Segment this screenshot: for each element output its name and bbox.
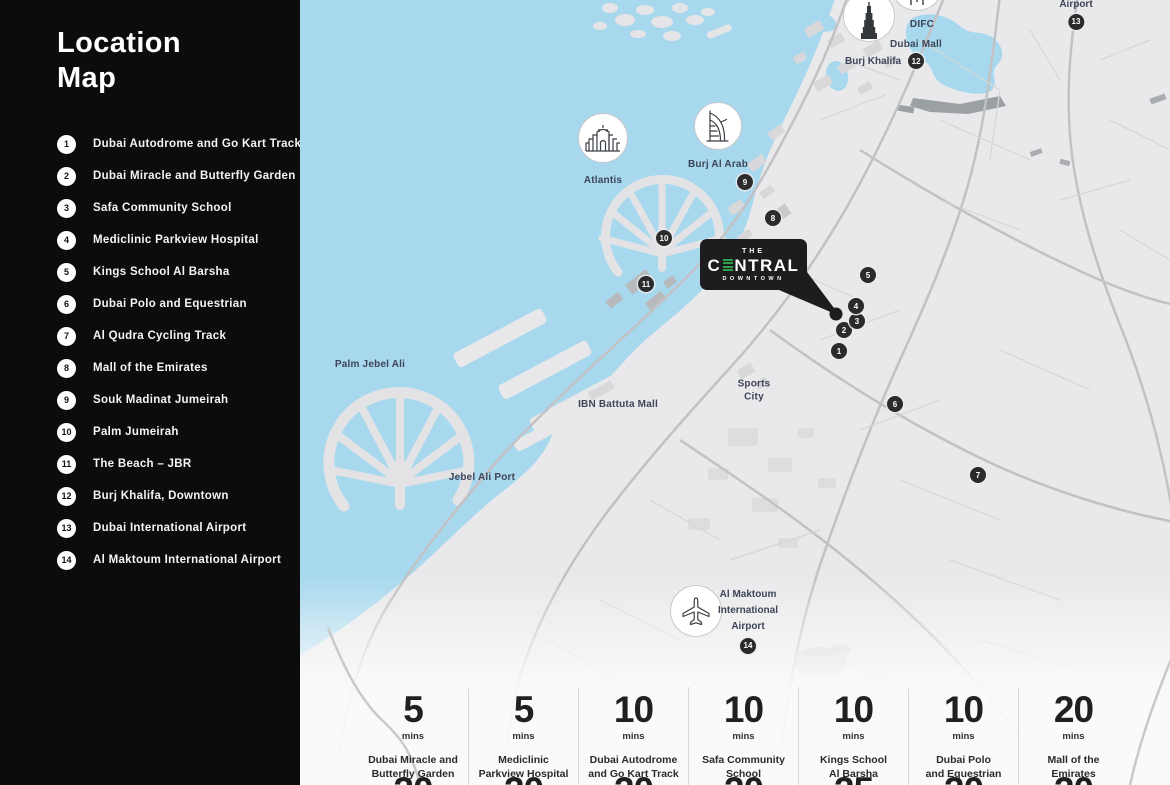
atlantis-icon: [585, 124, 621, 152]
burj-khalifa-icon: [858, 2, 880, 40]
list-item-label: Al Maktoum International Airport: [93, 554, 281, 566]
atlantis-poi: [578, 113, 628, 163]
list-item-label: Safa Community School: [93, 202, 232, 214]
list-item-label: Souk Madinat Jumeirah: [93, 394, 228, 406]
travel-time-value: 10: [913, 691, 1014, 728]
map-marker: 13: [1068, 14, 1084, 30]
list-number-badge: 7: [57, 327, 76, 346]
travel-time-unit: mins: [803, 731, 904, 742]
travel-time-value: 10: [583, 691, 684, 728]
list-number-badge: 10: [57, 423, 76, 442]
travel-time-unit: mins: [913, 731, 1014, 742]
list-item-label: Al Qudra Cycling Track: [93, 330, 226, 342]
list-item-label: Burj Khalifa, Downtown: [93, 490, 229, 502]
list-item: 13Dubai International Airport: [57, 519, 300, 538]
list-item-label: Dubai Autodrome and Go Kart Track: [93, 138, 301, 150]
central-downtown-logo: THE C NTRAL DOWNTOWN: [700, 239, 807, 290]
list-number-badge: 9: [57, 391, 76, 410]
burj-al-arab-poi: [694, 102, 742, 150]
list-item-label: Dubai Polo and Equestrian: [93, 298, 247, 310]
list-item-label: The Beach – JBR: [93, 458, 191, 470]
map-marker: 12: [908, 53, 924, 69]
map-marker: 1: [831, 343, 847, 359]
map-label-atlantis: Atlantis: [584, 175, 622, 188]
travel-time-value: 20: [578, 772, 688, 785]
map-label-difc: DIFC: [910, 19, 934, 32]
map-marker: 8: [765, 210, 781, 226]
list-item: 4Mediclinic Parkview Hospital: [57, 231, 300, 250]
travel-time-unit: mins: [693, 731, 794, 742]
map-marker: 10: [656, 230, 672, 246]
map-label-burj-khalifa: Burj Khalifa 12: [845, 53, 924, 69]
list-item: 5Kings School Al Barsha: [57, 263, 300, 282]
travel-times-row-partial: 20 20 20 20 25 20 20: [358, 772, 1128, 785]
list-item: 14Al Maktoum International Airport: [57, 551, 300, 570]
list-number-badge: 3: [57, 199, 76, 218]
location-map-page: Location Map 1Dubai Autodrome and Go Kar…: [0, 0, 1170, 785]
travel-time-value: 20: [468, 772, 578, 785]
map-label-ibn-battuta-mall: IBN Battuta Mall: [578, 399, 658, 412]
list-item: 12Burj Khalifa, Downtown: [57, 487, 300, 506]
list-item-label: Dubai International Airport: [93, 522, 246, 534]
map-label-palm-jebel-ali: Palm Jebel Ali: [335, 359, 405, 372]
list-number-badge: 12: [57, 487, 76, 506]
map-label-jebel-ali-port: Jebel Ali Port: [449, 472, 515, 485]
list-item: 10Palm Jumeirah: [57, 423, 300, 442]
location-list: 1Dubai Autodrome and Go Kart Track 2Duba…: [57, 135, 300, 570]
list-item: 7Al Qudra Cycling Track: [57, 327, 300, 346]
burj-al-arab-icon: [706, 110, 730, 142]
travel-time-value: 20: [358, 772, 468, 785]
map-marker: 3: [849, 313, 865, 329]
page-title: Location Map: [57, 26, 237, 97]
travel-time-value: 5: [362, 691, 464, 728]
creek-flats: [898, 93, 1167, 166]
list-item: 11The Beach – JBR: [57, 455, 300, 474]
list-item-label: Dubai Miracle and Butterfly Garden: [93, 170, 296, 182]
list-number-badge: 11: [57, 455, 76, 474]
list-number-badge: 8: [57, 359, 76, 378]
list-number-badge: 5: [57, 263, 76, 282]
airplane-icon: [681, 596, 711, 626]
travel-time-value: 10: [693, 691, 794, 728]
list-item: 1Dubai Autodrome and Go Kart Track: [57, 135, 300, 154]
travel-time-value: 20: [908, 772, 1018, 785]
list-item-label: Kings School Al Barsha: [93, 266, 230, 278]
travel-time-unit: mins: [473, 731, 574, 742]
list-item: 2Dubai Miracle and Butterfly Garden: [57, 167, 300, 186]
map-marker: 4: [848, 298, 864, 314]
travel-time-value: 20: [1023, 691, 1124, 728]
list-item-label: Palm Jumeirah: [93, 426, 179, 438]
difc-icon: [907, 0, 927, 10]
list-item: 6Dubai Polo and Equestrian: [57, 295, 300, 314]
map-marker: 9: [737, 174, 753, 190]
list-number-badge: 6: [57, 295, 76, 314]
logo-the: THE: [742, 248, 765, 255]
list-number-badge: 1: [57, 135, 76, 154]
suburb-blocks: [688, 428, 836, 548]
map-label-al-maktoum-airport: Al Maktoum International Airport 14: [718, 588, 778, 654]
travel-time-unit: mins: [583, 731, 684, 742]
travel-time-unit: mins: [1023, 731, 1124, 742]
map-label-sports-city: Sports City: [738, 379, 771, 404]
travel-time-value: 5: [473, 691, 574, 728]
list-item: 3Safa Community School: [57, 199, 300, 218]
central-logo-e-icon: [723, 259, 733, 271]
list-item-label: Mediclinic Parkview Hospital: [93, 234, 259, 246]
travel-time-value: 25: [798, 772, 908, 785]
sidebar: Location Map 1Dubai Autodrome and Go Kar…: [0, 0, 300, 785]
travel-time-value: 10: [803, 691, 904, 728]
map-marker: 11: [638, 276, 654, 292]
travel-time-value: 20: [1018, 772, 1128, 785]
list-number-badge: 13: [57, 519, 76, 538]
map-marker: 6: [887, 396, 903, 412]
list-number-badge: 2: [57, 167, 76, 186]
map-marker: 14: [740, 638, 756, 654]
travel-time-unit: mins: [362, 731, 464, 742]
map-marker: 5: [860, 267, 876, 283]
map-label-airport: Airport 13: [1059, 0, 1092, 30]
map-marker: 7: [970, 467, 986, 483]
list-item: 8Mall of the Emirates: [57, 359, 300, 378]
al-maktoum-airport-poi: [670, 585, 722, 637]
map-area: DIFC Dubai Mall Burj Khalifa 12 Airport …: [300, 0, 1170, 785]
map-label-dubai-mall: Dubai Mall: [890, 39, 942, 52]
logo-downtown: DOWNTOWN: [722, 276, 784, 282]
logo-brand: C NTRAL: [708, 257, 800, 274]
list-number-badge: 14: [57, 551, 76, 570]
list-item: 9Souk Madinat Jumeirah: [57, 391, 300, 410]
list-item-label: Mall of the Emirates: [93, 362, 208, 374]
travel-time-value: 20: [688, 772, 798, 785]
water-shapes: [300, 0, 1002, 658]
list-number-badge: 4: [57, 231, 76, 250]
map-label-burj-al-arab: Burj Al Arab: [688, 159, 748, 172]
